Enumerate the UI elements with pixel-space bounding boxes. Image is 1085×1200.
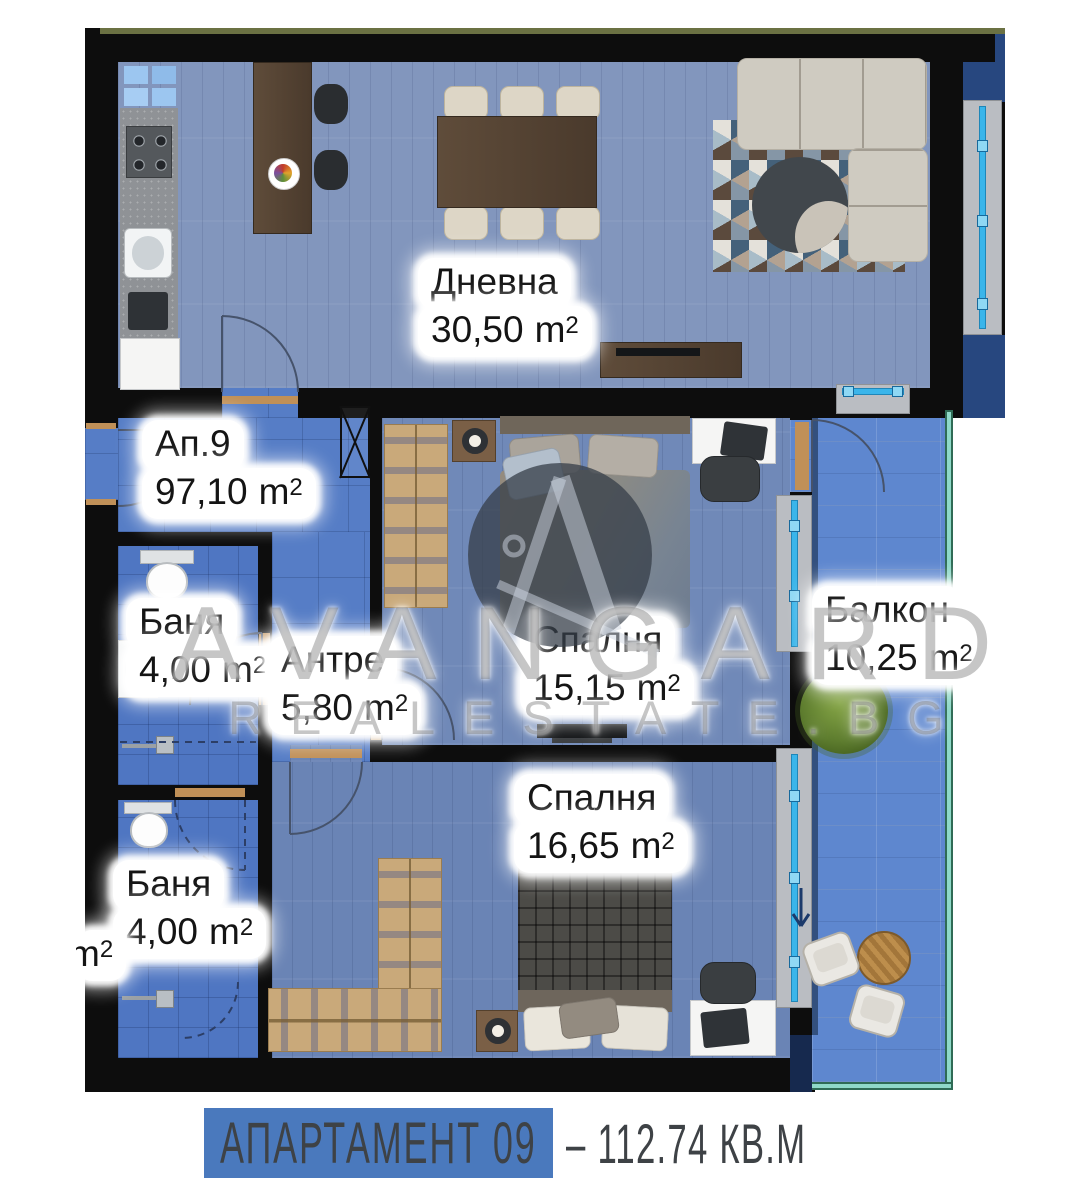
- balcony-door-threshold: [795, 422, 809, 490]
- window-handle: [789, 790, 800, 802]
- kitchen-island: [253, 62, 312, 234]
- room-label-bedroom2: Спалня 16,65m2: [514, 774, 688, 873]
- fridge: [120, 338, 180, 390]
- kitchen-window-pane: [152, 88, 176, 106]
- dining-chair: [556, 206, 600, 240]
- balcony-railing-right: [945, 410, 953, 1090]
- window-handle: [977, 215, 988, 227]
- entrance-threshold-top: [86, 423, 116, 429]
- room-label-living: Дневна 30,50m2: [418, 258, 592, 357]
- window-wall-accent-bottom: [963, 335, 1005, 418]
- entrance-threshold-bottom: [86, 499, 116, 505]
- laptop: [720, 421, 768, 461]
- balcony-table: [857, 931, 911, 985]
- table-lamp: [462, 428, 488, 454]
- bar-chair: [314, 150, 348, 190]
- watermark-brand: AVANGARD: [115, 585, 1085, 704]
- dining-chair: [556, 86, 600, 120]
- coffee-machine: [128, 292, 168, 330]
- bedroom2-door-threshold: [290, 749, 362, 758]
- sofa-horizontal: [737, 58, 927, 150]
- window-handle: [789, 956, 800, 968]
- total-area-line: – 112.74 КВ.М: [566, 1108, 954, 1178]
- sofa-chaise: [848, 148, 928, 262]
- bed-headboard: [500, 416, 690, 434]
- apartment-banner: АПАРТАМЕНТ 09: [204, 1108, 553, 1178]
- coffee-table: [752, 157, 848, 253]
- window-handle: [977, 298, 988, 310]
- total-area-text: – 112.74 КВ.М: [566, 1111, 806, 1176]
- watermark-site: REALESTATE.BG: [115, 690, 1085, 745]
- roof-edge-olive: [100, 28, 1005, 34]
- floorplan-page: Дневна 30,50m2 Ап.9 97,10m2 Баня 4,00m2 …: [0, 0, 1085, 1200]
- wardrobe: [384, 424, 448, 608]
- balcony-railing-bottom: [800, 1082, 953, 1090]
- window-wall-accent-top: [963, 62, 1005, 100]
- window-handle: [789, 520, 800, 532]
- room-label-bath2: Баня 4,00m2: [113, 860, 266, 959]
- office-chair: [700, 962, 756, 1004]
- table-lamp: [485, 1018, 511, 1044]
- window-handle: [977, 140, 988, 152]
- fruit-bowl-contents: [274, 164, 292, 182]
- apartment-banner-label: АПАРТАМЕНТ 09: [220, 1110, 537, 1177]
- balcony-corner-block: [790, 1035, 812, 1092]
- kitchen-window-pane: [124, 88, 148, 106]
- wardrobe-l-horizontal: [268, 988, 442, 1052]
- dining-chair: [444, 206, 488, 240]
- dining-chair: [500, 206, 544, 240]
- toilet-icon: [130, 812, 168, 848]
- kitchen-window-pane: [152, 66, 176, 84]
- room-label-apartment: Ап.9 97,10m2: [142, 420, 316, 519]
- bathroom2-door-threshold: [175, 788, 245, 797]
- tv: [616, 348, 700, 356]
- shower-head-icon: [156, 990, 174, 1008]
- kitchen-window-pane: [124, 66, 148, 84]
- dining-table: [437, 116, 597, 208]
- bar-chair: [314, 84, 348, 124]
- dining-chair: [500, 86, 544, 120]
- living-hall-threshold: [222, 396, 298, 404]
- window-handle: [892, 386, 903, 397]
- kitchen-sink: [124, 228, 172, 278]
- entrance-opening: [85, 428, 118, 500]
- window-handle: [843, 386, 854, 397]
- dining-chair: [444, 86, 488, 120]
- ventilation-shaft: [340, 406, 370, 478]
- window-handle: [789, 872, 800, 884]
- stove-icon: [126, 126, 172, 178]
- bed2-quilt: [518, 854, 672, 994]
- office-chair: [700, 456, 760, 502]
- room-label-partial: m2: [76, 930, 126, 987]
- laptop: [700, 1008, 750, 1049]
